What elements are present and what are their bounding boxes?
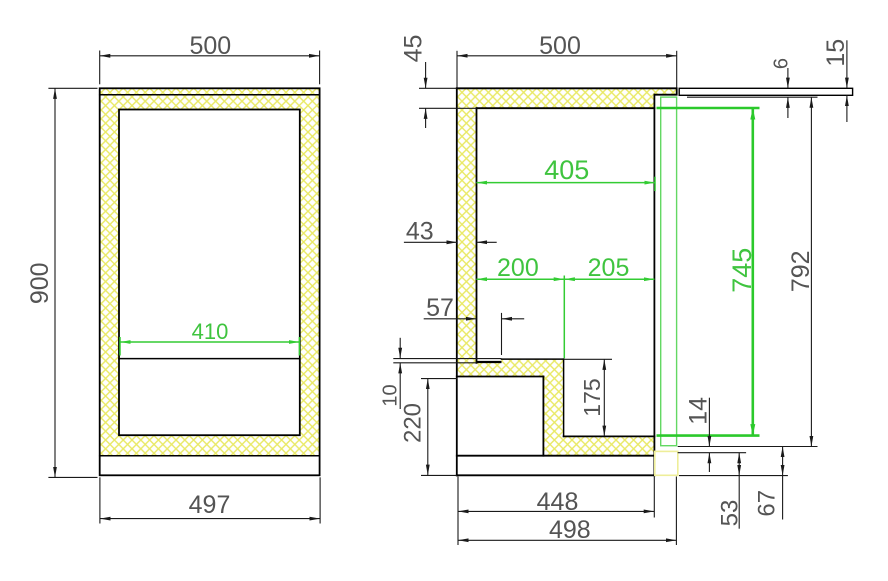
svg-text:43: 43 <box>406 217 434 245</box>
svg-text:498: 498 <box>549 516 591 544</box>
svg-text:745: 745 <box>727 248 757 293</box>
svg-text:6: 6 <box>771 58 793 69</box>
svg-text:14: 14 <box>684 397 712 425</box>
svg-text:410: 410 <box>192 319 229 344</box>
svg-text:448: 448 <box>537 488 579 516</box>
svg-text:900: 900 <box>26 262 54 304</box>
svg-text:15: 15 <box>822 39 850 67</box>
svg-text:45: 45 <box>400 35 428 63</box>
svg-text:53: 53 <box>716 500 743 527</box>
svg-text:220: 220 <box>400 403 427 443</box>
svg-text:57: 57 <box>426 294 454 322</box>
svg-text:10: 10 <box>379 384 401 406</box>
svg-text:200: 200 <box>497 254 539 282</box>
svg-text:67: 67 <box>753 490 780 517</box>
svg-text:792: 792 <box>787 250 815 292</box>
svg-text:205: 205 <box>588 254 630 282</box>
svg-text:500: 500 <box>539 32 581 60</box>
svg-text:175: 175 <box>579 378 605 416</box>
svg-text:500: 500 <box>189 32 231 60</box>
svg-text:405: 405 <box>544 155 589 185</box>
svg-text:497: 497 <box>189 491 231 519</box>
